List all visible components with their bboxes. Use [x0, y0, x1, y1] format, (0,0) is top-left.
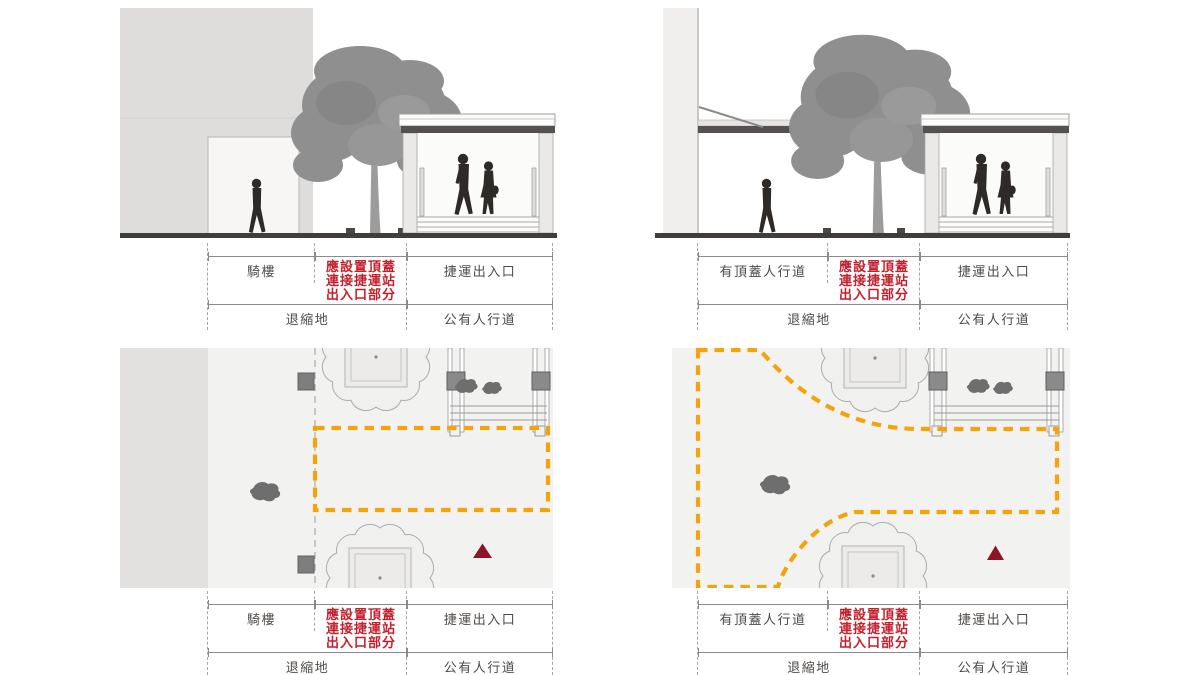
dim-label: 公有人行道 [444, 309, 517, 328]
required-canopy-note: 應設置頂蓋連接捷運站出入口部分 [839, 608, 909, 650]
dim-label: 捷運出入口 [444, 261, 517, 280]
dim-mrt-entrance: 捷運出入口 [407, 256, 553, 280]
building-plan [120, 348, 208, 588]
tree-grate [346, 228, 355, 233]
dim-label: 退縮地 [787, 309, 831, 328]
dim-covered-walkway: 有頂蓋人行道 [698, 256, 828, 280]
column-marker [929, 372, 947, 390]
mrt-entrance [399, 114, 555, 233]
dim-covered-walkway: 有頂蓋人行道 [698, 604, 828, 628]
dim-label: 退縮地 [286, 309, 330, 328]
dim-label: 公有人行道 [444, 657, 517, 675]
dim-label: 公有人行道 [958, 657, 1031, 675]
dim-setback: 退縮地 [698, 652, 920, 675]
tree-grate [897, 228, 905, 233]
dim-required-canopy: 應設置頂蓋連接捷運站出入口部分 [828, 604, 920, 650]
tree-grate [823, 228, 831, 233]
required-canopy-note: 應設置頂蓋連接捷運站出入口部分 [839, 260, 909, 302]
dim-label: 退縮地 [787, 657, 831, 675]
dim-required-canopy: 應設置頂蓋連接捷運站出入口部分 [828, 256, 920, 302]
dim-public-sidewalk: 公有人行道 [920, 304, 1068, 328]
ground-line [120, 233, 557, 238]
required-canopy-note: 應設置頂蓋連接捷運站出入口部分 [326, 260, 396, 302]
dim-mrt-entrance: 捷運出入口 [920, 604, 1068, 628]
column-marker [532, 372, 550, 390]
panel-elevation-arcade [120, 0, 557, 240]
building [663, 8, 698, 234]
dim-public-sidewalk: 公有人行道 [407, 304, 553, 328]
diagram-canvas: 騎樓 應設置頂蓋連接捷運站出入口部分 捷運出入口 退縮地 公有人行道 有頂蓋人行… [0, 0, 1196, 675]
dim-mrt-entrance: 捷運出入口 [407, 604, 553, 628]
column-marker [1046, 372, 1064, 390]
panel-plan-arcade [120, 348, 553, 588]
dim-arcade: 騎樓 [208, 604, 315, 628]
dim-required-canopy: 應設置頂蓋連接捷運站出入口部分 [315, 604, 407, 650]
column-marker [298, 373, 314, 390]
column-marker [298, 556, 314, 573]
dim-label: 公有人行道 [958, 309, 1031, 328]
panel-elevation-covered-walkway [655, 0, 1070, 240]
dim-setback: 退縮地 [208, 652, 407, 675]
dim-setback: 退縮地 [208, 304, 407, 328]
dim-label: 騎樓 [247, 609, 276, 628]
dim-label: 有頂蓋人行道 [719, 609, 806, 628]
ground-line [655, 233, 1070, 238]
mrt-entrance [921, 114, 1069, 233]
dim-public-sidewalk: 公有人行道 [407, 652, 553, 675]
dim-setback: 退縮地 [698, 304, 920, 328]
dim-label: 有頂蓋人行道 [719, 261, 806, 280]
dim-label: 捷運出入口 [444, 609, 517, 628]
dim-required-canopy: 應設置頂蓋連接捷運站出入口部分 [315, 256, 407, 302]
panel-plan-covered-walkway [655, 348, 1070, 588]
dim-arcade: 騎樓 [208, 256, 315, 280]
dim-mrt-entrance: 捷運出入口 [920, 256, 1068, 280]
dim-label: 騎樓 [247, 261, 276, 280]
required-canopy-note: 應設置頂蓋連接捷運站出入口部分 [326, 608, 396, 650]
dim-label: 捷運出入口 [958, 609, 1031, 628]
dim-label: 捷運出入口 [958, 261, 1031, 280]
dim-public-sidewalk: 公有人行道 [920, 652, 1068, 675]
walking-person-icon [759, 179, 776, 233]
dim-label: 退縮地 [286, 657, 330, 675]
